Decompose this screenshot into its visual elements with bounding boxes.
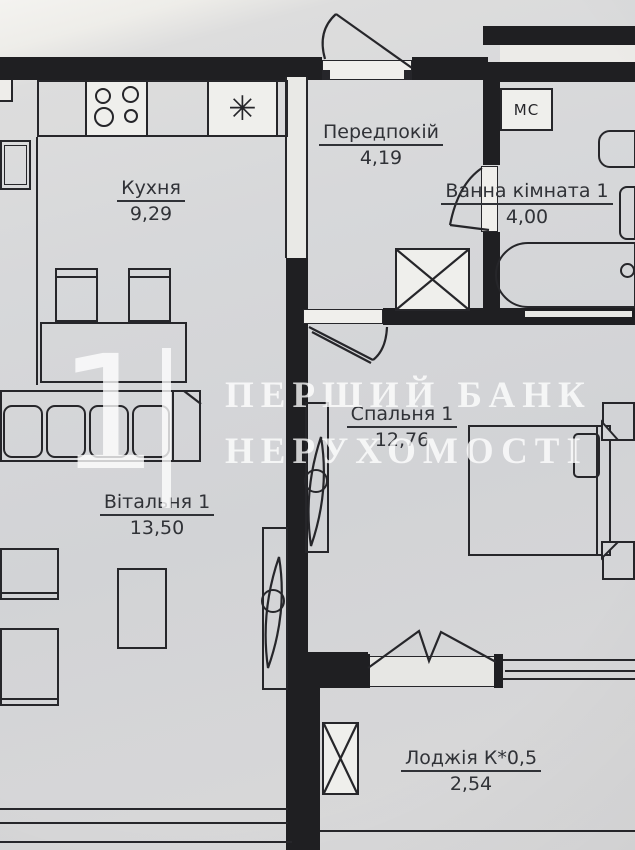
room-label-living: Вітальня 1 13,50: [77, 492, 237, 540]
sofa-cushion: [89, 405, 129, 458]
wall-top-entry-right: [412, 57, 488, 80]
entrance-door-swing-arc: [323, 14, 336, 59]
room-label-bathroom: Ванна кімната 1 4,00: [407, 181, 635, 229]
room-name: Кухня: [117, 178, 185, 202]
sofa-cushion: [3, 405, 43, 458]
bedroom-window-glazing: [505, 670, 635, 672]
room-name: Лоджія К*0,5: [401, 748, 541, 772]
wall-bathroom-outer-top: [483, 26, 635, 45]
ventilation-shaft: [395, 248, 470, 311]
sink-asterisk-icon: ✳: [209, 81, 276, 137]
armchair-back-line: [2, 698, 57, 700]
armchair-back-line: [2, 592, 57, 594]
bedroom-door-leaf: [303, 309, 383, 324]
nightstand: [602, 541, 635, 580]
bathtub-drain: [620, 263, 635, 278]
room-label-bedroom: Спальня 1 12,76: [322, 404, 482, 452]
room-label-loggia: Лоджія К*0,5 2,54: [391, 748, 551, 796]
fridge-inner-line: [4, 145, 27, 185]
bedroom-door-swing-arc: [373, 327, 387, 360]
kitchen-zone-line: [36, 137, 38, 385]
stove: [85, 80, 148, 137]
bedroom-top-wall-duct: [525, 311, 632, 317]
stove-burner-icon: [124, 109, 138, 123]
stove-burner-icon: [95, 88, 111, 104]
bedroom-window-line: [503, 659, 635, 661]
room-area: 4,00: [407, 207, 635, 228]
loggia-bottom-line: [320, 830, 635, 832]
entrance-door-jamb: [322, 70, 330, 80]
bedroom-door-swing-leaf: [309, 327, 373, 363]
washing-machine-label: МС: [514, 101, 539, 119]
wall-bathroom-left-upper: [483, 62, 500, 165]
living-window-line: [0, 822, 288, 824]
wall-notch-top-left: [0, 80, 13, 102]
loggia-door-threshold: [368, 656, 497, 687]
room-name: Вітальня 1: [100, 492, 214, 516]
wall-top-kitchen: [0, 57, 322, 80]
bathtub: [495, 242, 635, 308]
floor-plan: ✳ МС: [0, 0, 635, 850]
nightstand: [602, 402, 635, 441]
armchair: [0, 628, 59, 706]
room-area: 2,54: [391, 774, 551, 795]
entrance-door-jamb: [404, 70, 412, 80]
room-area: 4,19: [301, 148, 461, 169]
stove-burner-icon: [94, 107, 114, 127]
bedroom-window-line: [503, 678, 635, 680]
bathroom-wall-niche-top: [500, 45, 635, 62]
stove-burner-icon: [122, 86, 139, 103]
washing-machine: МС: [500, 88, 553, 131]
kitchen-chair-back-line: [130, 276, 169, 278]
room-label-hallway: Передпокій 4,19: [301, 122, 461, 170]
loggia-door-jamb: [361, 654, 370, 688]
coffee-table: [117, 568, 167, 649]
room-area: 13,50: [77, 518, 237, 539]
living-outer-wall-line: [0, 841, 292, 843]
kitchen-sink-unit: ✳: [207, 80, 278, 137]
kitchen-chair-back-line: [57, 276, 96, 278]
wall-bathroom-inner-top: [483, 62, 635, 82]
wall-loggia-column: [286, 688, 320, 850]
loggia-door-jamb: [494, 654, 503, 688]
ventilation-shaft-loggia: [322, 722, 359, 795]
room-area: 12,76: [322, 430, 482, 451]
watermark-bar: [162, 348, 171, 508]
room-name: Спальня 1: [347, 404, 458, 428]
bed-pillow: [573, 433, 600, 478]
living-window-line: [0, 808, 288, 810]
wall-loggia-stub: [286, 652, 368, 688]
sliding-wardrobe-handle: [261, 589, 285, 613]
sofa-cushion: [46, 405, 86, 458]
room-label-kitchen: Кухня 9,29: [71, 178, 231, 226]
bathroom-sink: [598, 130, 635, 168]
room-name: Ванна кімната 1: [441, 181, 612, 205]
room-name: Передпокій: [319, 122, 443, 146]
sliding-wardrobe-handle: [304, 469, 328, 493]
entrance-door-leaf: [322, 60, 412, 80]
room-area: 9,29: [71, 204, 231, 225]
sofa-armrest-line: [172, 392, 174, 460]
